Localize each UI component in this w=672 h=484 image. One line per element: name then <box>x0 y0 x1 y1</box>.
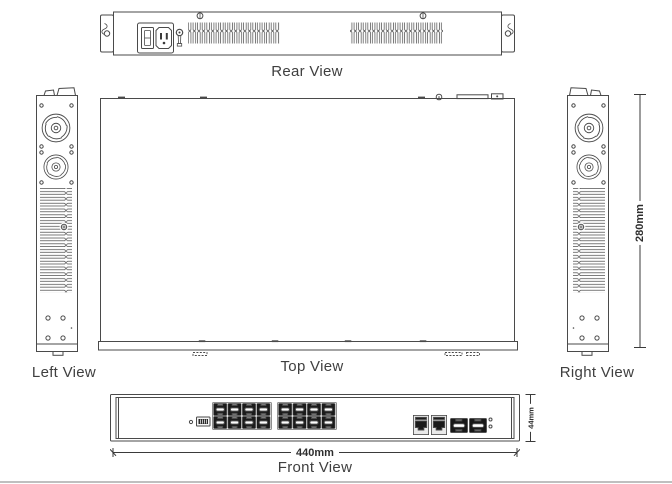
chassis-outline <box>101 99 515 342</box>
front-view-label: Front View <box>215 459 415 477</box>
left-view-drawing <box>34 86 82 358</box>
right-mount-ear <box>502 15 515 52</box>
hidden-port-outline <box>193 353 207 356</box>
side-height-dimension: 280mm <box>633 201 647 245</box>
rear-view-drawing <box>100 10 515 57</box>
front-view-drawing <box>110 394 520 442</box>
front-width-dimension-wrap: 440mm <box>110 446 520 459</box>
front-width-dimension: 440mm <box>291 447 339 459</box>
left-mount-ear <box>101 15 114 52</box>
led-indicator <box>489 418 492 428</box>
right-view-drawing <box>563 86 611 358</box>
console-dip-connector-icon <box>197 417 211 426</box>
ground-stud-icon <box>176 29 182 46</box>
hidden-port-outline <box>467 353 480 356</box>
front-height-dimension: 44mm <box>525 404 536 432</box>
page-bottom-rule <box>0 481 672 483</box>
top-view-drawing <box>98 92 518 358</box>
power-switch-icon <box>142 28 154 49</box>
rear-vent-slots <box>350 23 443 44</box>
top-view-label: Top View <box>212 358 412 376</box>
screw-icon <box>197 13 203 19</box>
front-bezel-edge <box>99 342 518 351</box>
power-module <box>138 23 174 53</box>
left-view-label: Left View <box>14 364 114 382</box>
reset-button-icon <box>189 420 192 423</box>
rear-vent-slots <box>188 23 280 44</box>
right-view-label: Right View <box>547 364 647 382</box>
rear-view-label: Rear View <box>207 63 407 81</box>
screw-icon <box>420 13 426 19</box>
power-inlet-icon <box>156 28 172 49</box>
mechanical-drawing-page: Rear View Left View Top <box>0 0 672 484</box>
hidden-port-outline <box>445 353 462 356</box>
